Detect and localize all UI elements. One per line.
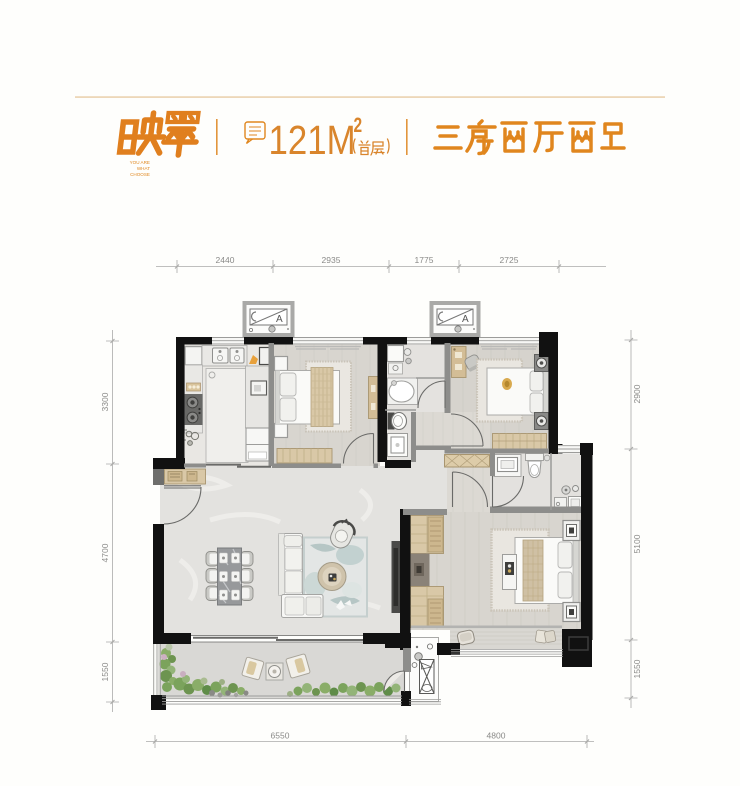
- svg-text:3300: 3300: [100, 392, 110, 411]
- svg-text:2935: 2935: [322, 255, 341, 265]
- svg-text:1775: 1775: [415, 255, 434, 265]
- svg-text:1550: 1550: [632, 659, 642, 678]
- svg-text:2: 2: [354, 112, 363, 136]
- svg-text:A: A: [276, 314, 283, 325]
- svg-text:2725: 2725: [500, 255, 519, 265]
- svg-text:2440: 2440: [216, 255, 235, 265]
- svg-text:5100: 5100: [632, 534, 642, 553]
- svg-text:6550: 6550: [271, 731, 290, 741]
- svg-text:4700: 4700: [100, 543, 110, 562]
- svg-text:YOU ARE: YOU ARE: [130, 160, 150, 165]
- svg-text:2900: 2900: [632, 384, 642, 403]
- svg-text:A: A: [462, 314, 469, 325]
- svg-text:CHOOSE: CHOOSE: [130, 172, 150, 177]
- svg-text:WHAT: WHAT: [137, 166, 150, 171]
- svg-text:1550: 1550: [100, 662, 110, 681]
- svg-text:4800: 4800: [487, 731, 506, 741]
- svg-text:121M: 121M: [269, 119, 356, 164]
